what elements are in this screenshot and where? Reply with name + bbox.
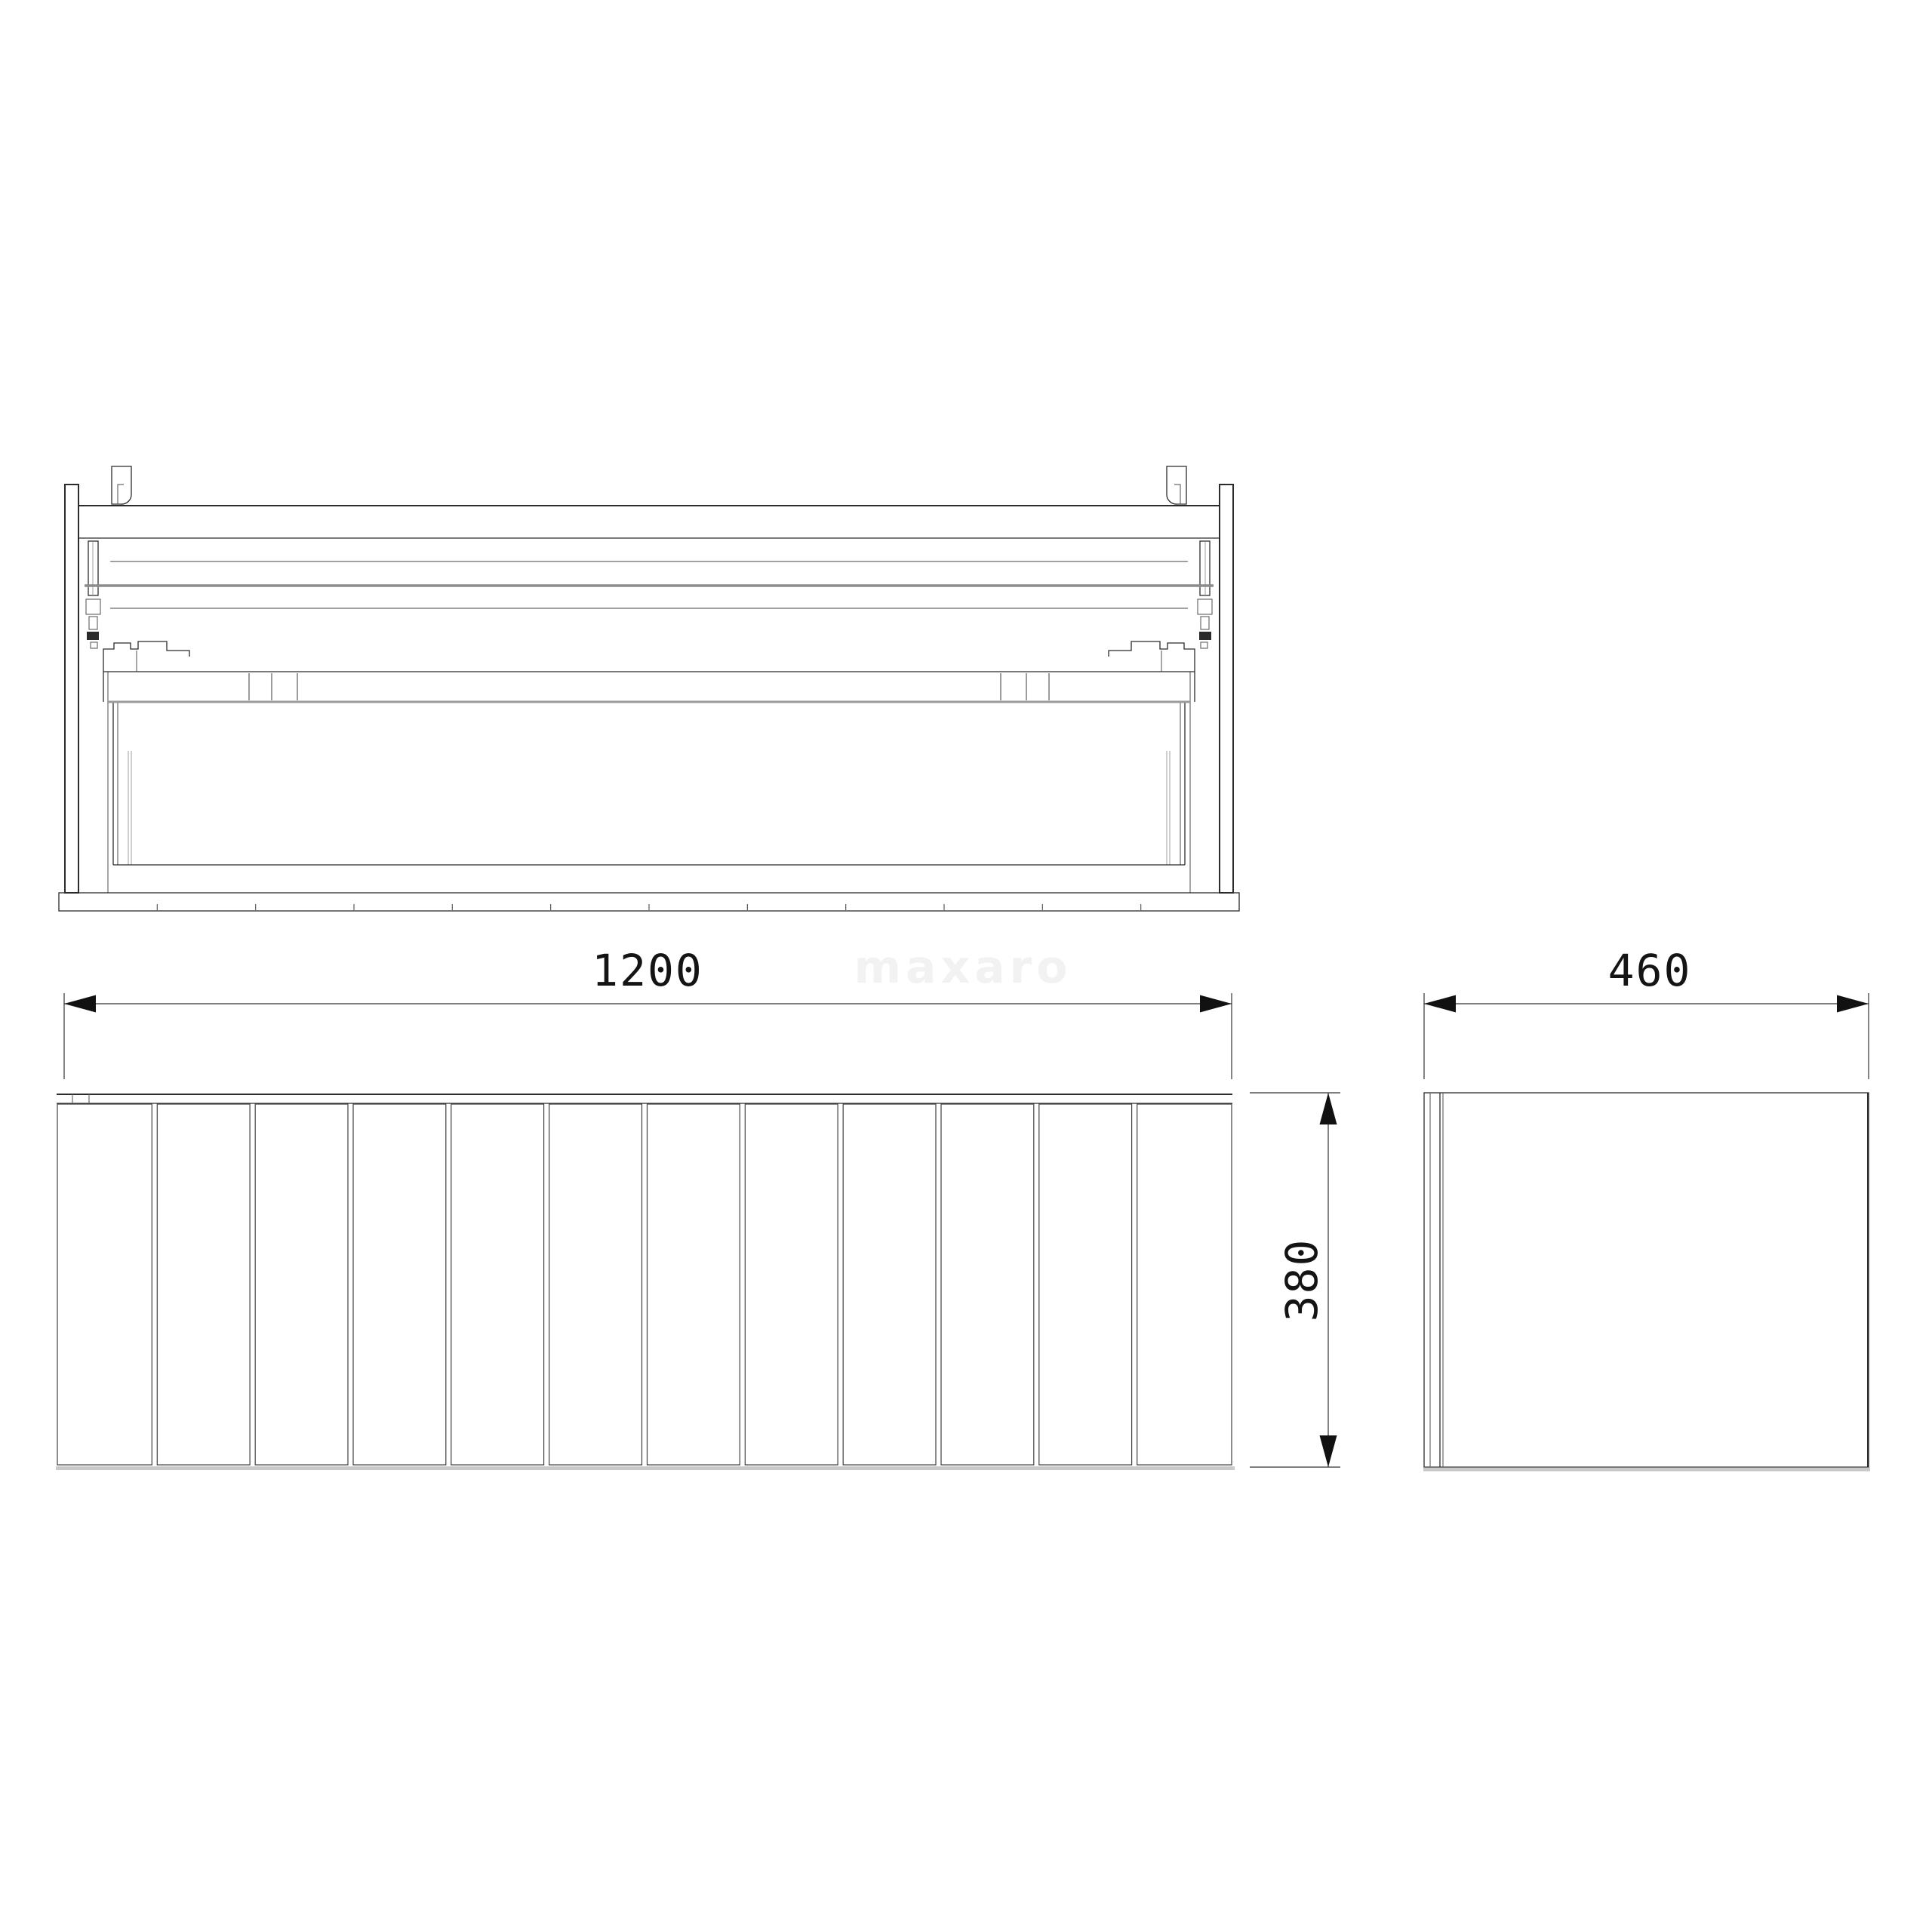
arrow-right-icon <box>1837 995 1869 1013</box>
front-slat <box>549 1104 642 1465</box>
arrow-left-icon <box>1424 995 1456 1013</box>
top-section-view <box>59 466 1239 911</box>
drawer-slide-hardware <box>86 541 100 648</box>
front-panel-slat-ticks <box>157 904 1140 910</box>
technical-drawing-canvas: 1200 460 380 maxaro <box>0 0 1932 1932</box>
front-slat <box>843 1104 936 1465</box>
top-view-right-detail <box>1001 466 1233 893</box>
front-view-slats <box>57 1104 1232 1465</box>
side-outline <box>1424 1093 1869 1467</box>
front-slat <box>745 1104 838 1465</box>
drawer-front-joint-ticks <box>249 673 297 700</box>
front-slat <box>57 1104 152 1465</box>
front-slat <box>255 1104 348 1465</box>
side-view <box>1423 1093 1870 1469</box>
arrow-down-icon <box>1320 1435 1337 1467</box>
front-slat <box>941 1104 1034 1465</box>
front-slat <box>451 1104 544 1465</box>
wall-rail-hook-inner <box>118 485 124 504</box>
front-view <box>56 1094 1235 1469</box>
watermark-logo: maxaro <box>854 941 1072 994</box>
front-slat <box>353 1104 446 1465</box>
front-slat <box>1137 1104 1232 1465</box>
arrow-up-icon <box>1320 1093 1337 1124</box>
wall-rail-hook <box>112 466 131 504</box>
side-panel-section <box>65 485 78 893</box>
front-slat <box>1039 1104 1132 1465</box>
dimension-height: 380 <box>1250 1093 1340 1467</box>
width-dimension-label: 1200 <box>592 945 703 996</box>
front-fixing-bracket <box>103 641 189 672</box>
arrow-left-icon <box>64 995 96 1013</box>
top-view-horizontals <box>59 506 1239 911</box>
front-slat <box>648 1104 740 1465</box>
height-dimension-label: 380 <box>1276 1238 1327 1322</box>
depth-dimension-label: 460 <box>1608 945 1692 996</box>
top-view-left-detail <box>65 466 297 893</box>
front-slat <box>157 1104 250 1465</box>
dimension-depth: 460 <box>1424 945 1869 1079</box>
arrow-right-icon <box>1200 995 1232 1013</box>
